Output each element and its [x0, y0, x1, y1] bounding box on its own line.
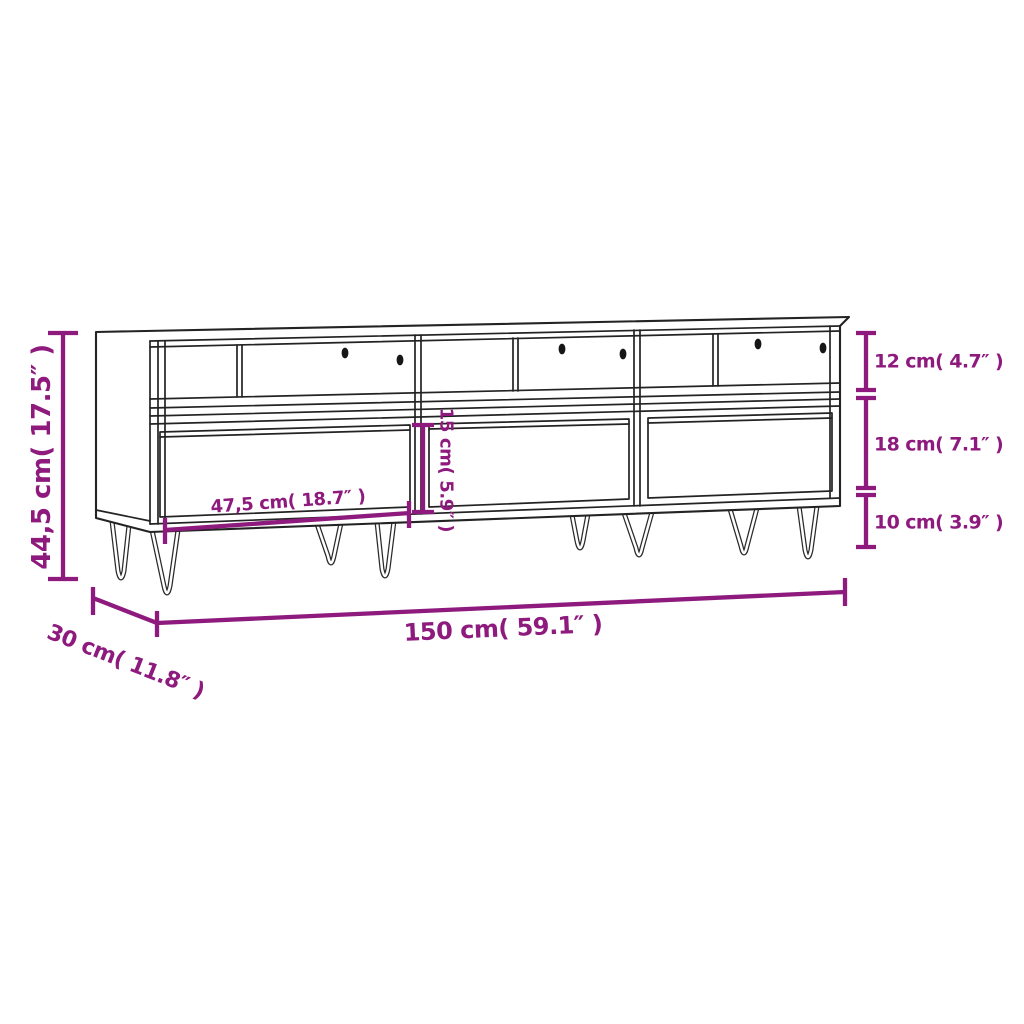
dim-compartment-height: 12 cm( 4.7″ ) [856, 333, 1003, 390]
hairpin-leg [572, 514, 588, 548]
cable-hole [559, 344, 566, 355]
cable-hole [620, 349, 627, 360]
dim-leg-height: 10 cm( 3.9″ ) [856, 495, 1003, 547]
hairpin-leg [112, 521, 129, 578]
dim-line [93, 587, 157, 623]
hairpin-leg [730, 508, 757, 553]
dim-overall-height: 44,5 cm( 17.5″ ) [27, 333, 78, 579]
dim-drawer-section-height: 18 cm( 7.1″ ) [856, 398, 1003, 488]
hairpin-leg [799, 506, 817, 557]
dim-label-drawer-front-height: 15 cm( 5.9″ ) [436, 408, 457, 532]
cabinet-body [96, 317, 849, 532]
cable-hole [820, 343, 827, 354]
hairpin-leg [377, 521, 394, 576]
dim-line [856, 333, 876, 390]
dim-label-compartment-height: 12 cm( 4.7″ ) [874, 351, 1003, 373]
dim-label-drawer-section-height: 18 cm( 7.1″ ) [874, 434, 1003, 456]
cable-hole [342, 348, 349, 359]
diagram-svg: 44,5 cm( 17.5″ ) 12 cm( 4.7″ ) 18 cm( 7.… [0, 0, 1024, 1024]
hairpin-leg [317, 523, 341, 563]
dim-label-overall-width: 150 cm( 59.1″ ) [403, 610, 603, 647]
dim-label-overall-depth: 30 cm( 11.8″ ) [43, 620, 207, 704]
dim-line [856, 398, 876, 488]
product-dimension-image: 44,5 cm( 17.5″ ) 12 cm( 4.7″ ) 18 cm( 7.… [0, 0, 1024, 1024]
dim-overall-width: 150 cm( 59.1″ ) [157, 578, 845, 647]
hairpin-leg [624, 512, 652, 555]
cable-hole [755, 339, 762, 350]
cable-hole [397, 355, 404, 366]
dim-label-leg-height: 10 cm( 3.9″ ) [874, 512, 1003, 534]
dim-line [856, 495, 876, 547]
dim-overall-depth: 30 cm( 11.8″ ) [43, 587, 207, 704]
dim-label-overall-height: 44,5 cm( 17.5″ ) [27, 344, 57, 569]
